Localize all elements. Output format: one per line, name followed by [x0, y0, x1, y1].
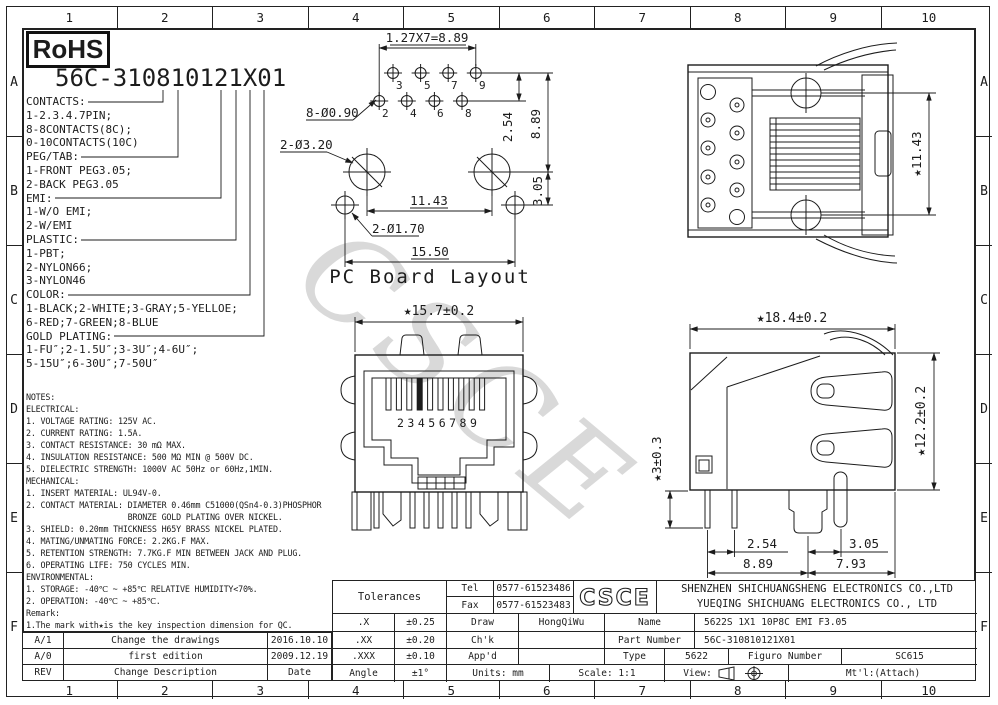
tol-xxx-label: .XXX — [333, 648, 394, 664]
emi-wire-bottom — [816, 239, 897, 263]
tol-x-value: ±0.25 — [394, 613, 446, 631]
side-peg-window — [696, 456, 712, 473]
pcb-pin-label-5: 5 — [424, 79, 431, 92]
side-emi-wire — [824, 331, 893, 355]
legend-line: EMI: — [26, 192, 238, 206]
pcb-layout-view: 3 5 7 9 2 4 6 8 1.27X7=8.89 8-Ø0.90 2-Ø3… — [280, 30, 553, 288]
tol-xx-label: .XX — [333, 631, 394, 648]
column-label: 5 — [404, 681, 500, 699]
tolerances-header: Tolerances — [333, 581, 446, 613]
column-label: 7 — [595, 6, 691, 28]
revision-description: first edition — [63, 649, 267, 664]
note-line: NOTES: — [26, 391, 336, 403]
part-number-heading: 56C-310810121X01 — [55, 64, 286, 92]
rohs-badge: RoHS — [26, 31, 110, 68]
side-dim-pin-span: 8.89 — [743, 556, 773, 571]
note-line: 5. RETENTION STRENGTH: 7.7KG.F MIN BETWE… — [26, 547, 336, 559]
legend-line: PLASTIC: — [26, 233, 238, 247]
csce-logo-text: CSCE — [579, 586, 651, 611]
column-label: 10 — [882, 681, 977, 699]
draw-value: HongQiWu — [518, 613, 604, 631]
column-label: 2 — [118, 681, 214, 699]
column-label: 2 — [118, 6, 214, 28]
side-view-dim-height: ★12.2±0.2 — [914, 386, 929, 456]
name-value: 5622S 1X1 10P8C EMI F3.05 — [694, 613, 977, 631]
column-ruler-bottom: 12345678910 — [22, 681, 976, 699]
row-label: E — [976, 464, 992, 573]
note-line: 1. INSERT MATERIAL: UL94V-0. — [26, 487, 336, 499]
company-line2: YUEQING SHICHUANG ELECTRONICS CO., LTD — [697, 597, 937, 612]
column-label: 4 — [309, 681, 405, 699]
side-view-dim-leg: ★3±0.3 — [649, 436, 664, 481]
pcb-dim-big-span: 11.43 — [410, 193, 448, 208]
legend-line: 1-BLACK;2-WHITE;3-GRAY;5-YELLOE; — [26, 302, 238, 316]
note-line: 2. CURRENT RATING: 1.5A. — [26, 427, 336, 439]
column-label: 9 — [786, 681, 882, 699]
pcb-pin-label-9: 9 — [479, 79, 486, 92]
front-ear-right-2 — [523, 432, 537, 460]
note-line: 4. MATING/UNMATING FORCE: 2.2KG.F MAX. — [26, 535, 336, 547]
legend-line: CONTACTS: — [26, 95, 238, 109]
legend-line: 6-RED;7-GREEN;8-BLUE — [26, 316, 238, 330]
row-ruler-right: ABCDEF — [976, 28, 992, 681]
legend-line: PEG/TAB: — [26, 150, 238, 164]
revision-description: Change the drawings — [63, 633, 267, 648]
row-ruler-left: ABCDEF — [6, 28, 22, 681]
revision-row: A/0 first edition 2009.12.19 — [23, 648, 331, 664]
column-label: 6 — [500, 6, 596, 28]
revision-row: REV Change Description Date — [23, 664, 331, 680]
legend-line: 1-FRONT PEG3.05; — [26, 164, 238, 178]
pcb-pin-label-3: 3 — [396, 79, 403, 92]
pcb-dim-row-gap: 2.54 — [500, 112, 515, 142]
legend-line: COLOR: — [26, 288, 238, 302]
row-label: D — [976, 355, 992, 464]
column-label: 7 — [595, 681, 691, 699]
connector-side-view: ★18.4±0.2 ★3±0.3 — [649, 311, 940, 578]
figure-number-label: Figuro Number — [728, 648, 841, 664]
top-view-contact-comb — [770, 118, 860, 190]
revision-rev: A/0 — [23, 649, 63, 664]
column-label: 9 — [786, 6, 882, 28]
legend-line: 2-W/EMI — [26, 219, 238, 233]
csce-logo-icon: CSCE — [576, 583, 654, 611]
tol-angle-value: ±1° — [394, 664, 446, 682]
note-line: ENVIRONMENTAL: — [26, 571, 336, 583]
row-label: C — [6, 246, 22, 355]
company-logo: CSCE — [573, 581, 656, 613]
note-line: Remark: — [26, 607, 336, 619]
fax-value: 0577-61523483 — [493, 596, 573, 613]
side-view-legs — [705, 472, 847, 533]
pcb-dim-pitch: 1.27X7=8.89 — [386, 30, 469, 45]
legend-line: 1-PBT; — [26, 247, 238, 261]
revision-description: Change Description — [63, 665, 267, 680]
connector-front-view: ★15.7±0.2 23456789 — [341, 304, 537, 530]
legend-line: 3-NYLON46 — [26, 274, 238, 288]
row-label: D — [6, 355, 22, 464]
side-emi-finger-1 — [811, 372, 892, 410]
pcb-pin-label-8: 8 — [465, 107, 472, 120]
connector-top-view: ★11.43 — [688, 43, 936, 263]
note-line: 1.The mark with★is the key inspection di… — [26, 619, 336, 631]
scale-cell: Scale: 1:1 — [549, 664, 664, 682]
part-number-value: 56C-310810121X01 — [694, 631, 977, 648]
legend-line: 1-2.3.4.7PIN; — [26, 109, 238, 123]
tol-xx-value: ±0.20 — [394, 631, 446, 648]
type-label: Type — [604, 648, 664, 664]
pcb-pin-label-2: 2 — [382, 107, 389, 120]
tol-xxx-value: ±0.10 — [394, 648, 446, 664]
pcb-label-big-holes: 2-Ø3.20 — [280, 137, 333, 152]
column-label: 1 — [22, 681, 118, 699]
row-label: A — [976, 28, 992, 137]
third-angle-projection-icon — [718, 666, 770, 681]
name-label: Name — [604, 613, 694, 631]
side-dim-pin-pitch: 2.54 — [747, 536, 777, 551]
note-line: 3. SHIELD: 0.20mm THICKNESS H65Y BRASS N… — [26, 523, 336, 535]
front-view-legs — [352, 492, 527, 530]
note-line: 3. CONTACT RESISTANCE: 30 mΩ MAX. — [26, 439, 336, 451]
tel-value: 0577-61523486 — [493, 581, 573, 596]
front-ear-left-1 — [341, 376, 355, 404]
company-line1: SHENZHEN SHICHUANGSHENG ELECTRONICS CO.,… — [681, 582, 953, 597]
legend-line: 1-FU″;2-1.5U″;3-3U″;4-6U″; — [26, 343, 238, 357]
top-view-dim-height: ★11.43 — [909, 131, 924, 176]
pcb-dim-total: 15.50 — [411, 244, 449, 259]
column-ruler-top: 12345678910 — [22, 6, 976, 28]
column-label: 8 — [691, 6, 787, 28]
revision-row: A/1 Change the drawings 2016.10.10 — [23, 632, 331, 648]
note-line: 2. CONTACT MATERIAL: DIAMETER 0.46mm C51… — [26, 499, 336, 511]
column-label: 4 — [309, 6, 405, 28]
column-label: 3 — [213, 681, 309, 699]
revision-date: Date — [267, 665, 331, 680]
tol-angle-label: Angle — [333, 664, 394, 682]
units-cell: Units: mm — [446, 664, 549, 682]
pcb-pin-label-6: 6 — [437, 107, 444, 120]
top-view-contacts — [701, 85, 745, 225]
front-top-tab-left — [400, 335, 424, 355]
pcb-label-peg-holes: 2-Ø1.70 — [372, 221, 425, 236]
row-label: C — [976, 246, 992, 355]
side-view-dim-width: ★18.4±0.2 — [757, 311, 827, 326]
revision-table: A/1 Change the drawings 2016.10.10 A/0 f… — [22, 631, 332, 681]
emi-wire-top — [816, 43, 897, 66]
row-label: B — [6, 137, 22, 246]
side-dim-peg-span: 7.93 — [836, 556, 866, 571]
legend-line: 2-BACK PEG3.05 — [26, 178, 238, 192]
side-dim-peg-offset: 3.05 — [849, 536, 879, 551]
note-line: 5. DIELECTRIC STRENGTH: 1000V AC 50Hz or… — [26, 463, 336, 475]
pcb-pin-label-4: 4 — [410, 107, 417, 120]
row-label: E — [6, 464, 22, 573]
row-label: A — [6, 28, 22, 137]
revision-date: 2016.10.10 — [267, 633, 331, 648]
view-cell: View: — [664, 664, 788, 682]
column-label: 10 — [882, 6, 977, 28]
tol-x-label: .X — [333, 613, 394, 631]
draw-label: Draw — [446, 613, 518, 631]
legend-line: GOLD PLATING: — [26, 330, 238, 344]
note-line: 4. INSULATION RESISTANCE: 500 MΩ MIN @ 5… — [26, 451, 336, 463]
column-label: 5 — [404, 6, 500, 28]
pcb-label-pin-holes: 8-Ø0.90 — [306, 105, 359, 120]
appd-value — [518, 648, 604, 664]
pcb-dim-rows-height: 8.89 — [528, 109, 543, 139]
fax-label: Fax — [446, 596, 493, 613]
view-label: View: — [683, 668, 712, 679]
column-label: 3 — [213, 6, 309, 28]
front-top-tab-right — [458, 335, 482, 355]
revision-rev: REV — [23, 665, 63, 680]
material-cell: Mt'l:(Attach) — [788, 664, 977, 682]
chk-label: Ch'k — [446, 631, 518, 648]
pcb-pin-label-7: 7 — [451, 79, 458, 92]
note-line: ELECTRICAL: — [26, 403, 336, 415]
note-line: BRONZE GOLD PLATING OVER NICKEL. — [26, 511, 336, 523]
note-line: 6. OPERATING LIFE: 750 CYCLES MIN. — [26, 559, 336, 571]
type-value: 5622 — [664, 648, 728, 664]
tel-label: Tel — [446, 581, 493, 596]
column-label: 8 — [691, 681, 787, 699]
front-ear-right-1 — [523, 376, 537, 404]
column-label: 1 — [22, 6, 118, 28]
pcb-layout-title: PC Board Layout — [329, 266, 531, 288]
legend-line: 5-15U″;6-30U″;7-50U″ — [26, 357, 238, 371]
note-line: 2. OPERATION: -40℃ ~ +85℃. — [26, 595, 336, 607]
legend-line: 2-NYLON66; — [26, 261, 238, 275]
legend-line: 1-W/O EMI; — [26, 205, 238, 219]
revision-rev: A/1 — [23, 633, 63, 648]
appd-label: App'd — [446, 648, 518, 664]
front-view-dim-width: ★15.7±0.2 — [404, 304, 474, 319]
figure-number-value: SC615 — [841, 648, 977, 664]
chk-value — [518, 631, 604, 648]
socket-contact-slats — [386, 378, 485, 410]
row-label: F — [976, 573, 992, 681]
note-line: 1. VOLTAGE RATING: 125V AC. — [26, 415, 336, 427]
side-emi-finger-2 — [811, 429, 892, 467]
title-block: Tolerances Tel 0577-61523486 Fax 0577-61… — [332, 580, 976, 681]
row-label: B — [976, 137, 992, 246]
legend-line: 0-10CONTACTS(10C) — [26, 136, 238, 150]
note-line: MECHANICAL: — [26, 475, 336, 487]
row-label: F — [6, 573, 22, 681]
part-number-label: Part Number — [604, 631, 694, 648]
part-code-legend: CONTACTS:1-2.3.4.7PIN;8-8CONTACTS(8C);0-… — [26, 95, 238, 371]
legend-line: 8-8CONTACTS(8C); — [26, 123, 238, 137]
note-line: 1. STORAGE: -40℃ ~ +85℃ RELATIVE HUMIDIT… — [26, 583, 336, 595]
front-ear-left-2 — [341, 432, 355, 460]
revision-date: 2009.12.19 — [267, 649, 331, 664]
pcb-dim-peg-drop: 3.05 — [530, 176, 545, 206]
notes-block: NOTES:ELECTRICAL:1. VOLTAGE RATING: 125V… — [26, 391, 336, 631]
socket-pin-numbers: 23456789 — [397, 416, 480, 430]
pcb-mounting-holes — [343, 148, 516, 196]
company-name: SHENZHEN SHICHUANGSHENG ELECTRONICS CO.,… — [656, 581, 977, 613]
column-label: 6 — [500, 681, 596, 699]
